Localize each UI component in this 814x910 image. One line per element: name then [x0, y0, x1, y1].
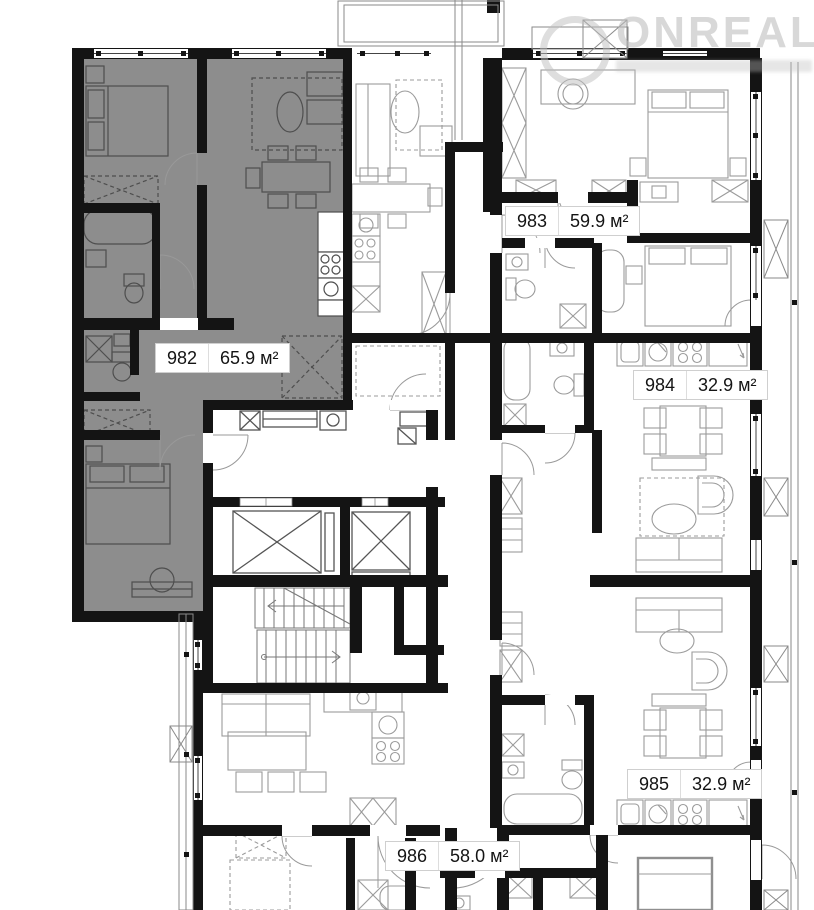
apartment-area: 32.9 м² — [687, 371, 767, 399]
balcony-unit-icon — [764, 220, 788, 278]
apartment-number: 986 — [386, 842, 439, 870]
apartment-area: 65.9 м² — [209, 344, 289, 372]
apartment-label-982: 982 65.9 м² — [155, 343, 290, 373]
apartment-label-983: 983 59.9 м² — [505, 206, 640, 236]
apartment-label-986: 986 58.0 м² — [385, 841, 520, 871]
apartment-number: 983 — [506, 207, 559, 235]
apartment-label-985: 985 32.9 м² — [627, 769, 762, 799]
apartment-area: 58.0 м² — [439, 842, 519, 870]
balcony-unit-icon — [764, 890, 788, 910]
elevator-shaft-icon — [352, 512, 410, 579]
apartment-label-984: 984 32.9 м² — [633, 370, 768, 400]
apartment-number: 985 — [628, 770, 681, 798]
apartment-area: 59.9 м² — [559, 207, 639, 235]
staircase-icon — [255, 588, 350, 683]
core — [233, 411, 430, 579]
balcony-unit-icon — [764, 646, 788, 682]
elevator-shaft-icon — [233, 511, 334, 573]
apartment-number: 982 — [156, 344, 209, 372]
balcony-unit-icon — [764, 478, 788, 516]
apartment-area: 32.9 м² — [681, 770, 761, 798]
corridor-closets — [240, 411, 430, 444]
apartment-number: 984 — [634, 371, 687, 399]
floor-plan-screenshot: 982 65.9 м² 983 59.9 м² 984 32.9 м² 985 … — [0, 0, 814, 910]
